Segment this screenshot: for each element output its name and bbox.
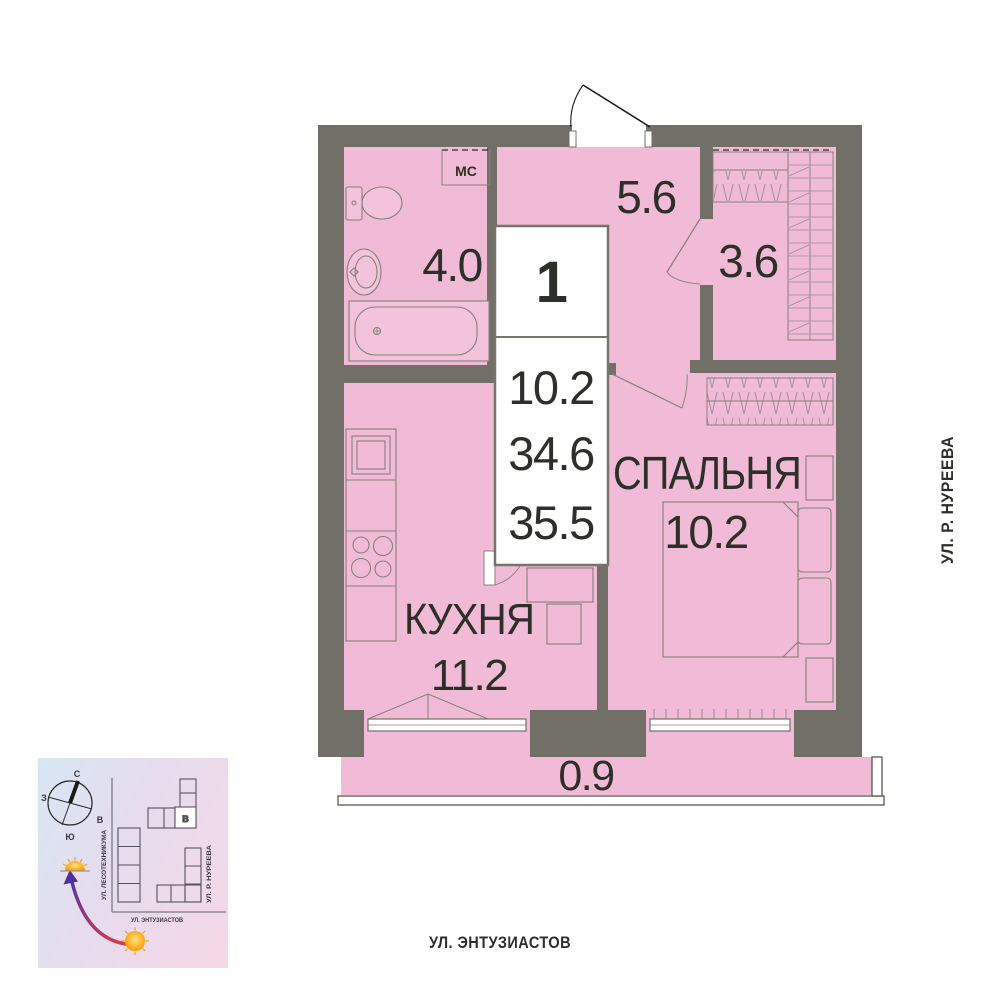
sun-icon <box>121 927 149 955</box>
minimap-street-right: УЛ. Р. НУРЕЕВА <box>206 845 213 903</box>
storage-label: МС <box>455 163 477 179</box>
entrance-door-leaf <box>583 85 650 127</box>
building-top-L: В <box>148 779 196 828</box>
info-area-without-balcony: 34.6 <box>508 427 594 480</box>
balcony-area-label: 0.9 <box>558 752 613 800</box>
kitchen-door-leaf <box>484 551 495 585</box>
wall-wardrobe-upper <box>700 147 713 219</box>
wall-bedroom-top <box>690 360 836 373</box>
wall-bottom-center <box>530 710 646 757</box>
bathtub <box>349 301 489 361</box>
info-rooms-count: 1 <box>536 250 567 315</box>
hallway-area-label: 5.6 <box>616 171 675 223</box>
building-label: В <box>182 814 189 824</box>
wall-top-left <box>318 125 572 147</box>
wall-left <box>318 125 344 757</box>
bedroom-area-label: 10.2 <box>664 506 748 558</box>
info-box: 1 10.2 34.6 35.5 <box>495 226 608 565</box>
minimap-street-bottom: УЛ. ЭНТУЗИАСТОВ <box>131 917 183 924</box>
wall-wardrobe-lower <box>700 285 713 371</box>
bathroom-area-label: 4.0 <box>422 239 481 291</box>
street-label-right: УЛ. Р. НУРЕЕВА <box>938 436 957 564</box>
compass: С З В Ю <box>41 769 104 842</box>
sink <box>347 249 381 295</box>
wall-right <box>836 125 862 757</box>
street-label-bottom: УЛ. ЭНТУЗИАСТОВ <box>429 933 571 952</box>
minimap-buildings: В <box>118 779 201 902</box>
info-living-area: 10.2 <box>508 361 593 414</box>
wall-bottom-right <box>794 710 862 757</box>
compass-north: С <box>74 769 81 779</box>
wall-bottom-left <box>318 710 364 757</box>
compass-needle <box>70 781 78 803</box>
wall-bathroom-bottom <box>344 365 497 383</box>
bedroom-wardrobe <box>707 378 833 425</box>
wall-kitchen-bedroom <box>597 565 608 710</box>
toilet <box>346 187 402 220</box>
bedroom-name-label: СПАЛЬНЯ <box>613 447 801 499</box>
building-column <box>118 828 140 902</box>
wardrobe-area-label: 3.6 <box>718 235 777 287</box>
minimap-svg: С З В Ю УЛ. ЛЕСОТЕХНИКУМА УЛ. Р. НУРЕЕВА… <box>38 758 228 968</box>
sun-arrowhead <box>64 870 79 885</box>
kitchen-area-label: 11.2 <box>431 651 507 700</box>
info-total-area: 35.5 <box>508 496 594 549</box>
kitchen-name-label: КУХНЯ <box>404 595 534 644</box>
minimap-street-left: УЛ. ЛЕСОТЕХНИКУМА <box>101 830 108 900</box>
entrance-door-arc <box>571 85 583 127</box>
sunset-icon <box>60 857 90 871</box>
compass-west: З <box>41 793 47 803</box>
floor-plan-page: 1 10.2 34.6 35.5 МС 4.0 5.6 3.6 СПАЛЬНЯ … <box>0 0 1000 1000</box>
compass-south: Ю <box>65 832 74 842</box>
wall-top-right <box>646 125 862 147</box>
compass-east: В <box>97 815 104 825</box>
entrance-door <box>569 85 652 147</box>
location-minimap: С З В Ю УЛ. ЛЕСОТЕХНИКУМА УЛ. Р. НУРЕЕВА… <box>38 758 228 968</box>
balcony-glazing-right <box>872 757 882 796</box>
building-bottom-L <box>157 848 201 902</box>
